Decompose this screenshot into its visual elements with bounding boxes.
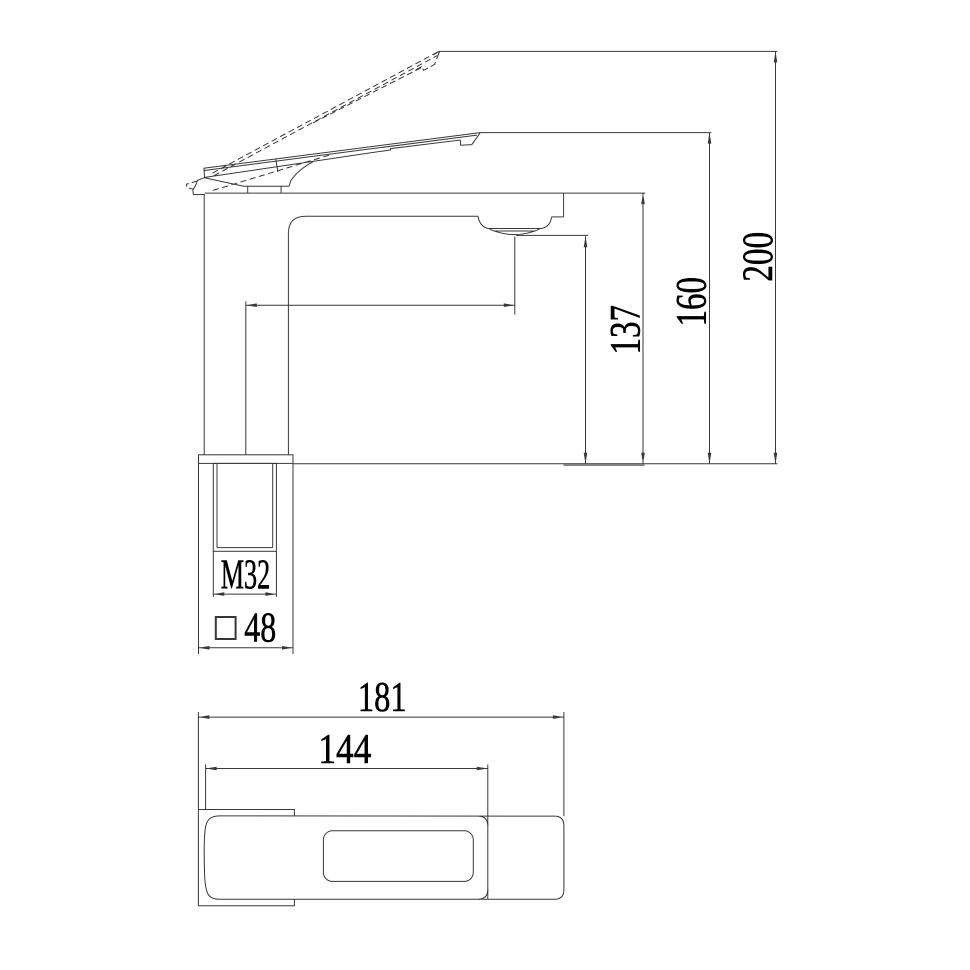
- svg-text:160: 160: [669, 277, 716, 327]
- svg-text:M32: M32: [221, 553, 271, 599]
- svg-text:48: 48: [244, 606, 276, 652]
- svg-text:181: 181: [358, 675, 407, 721]
- svg-text:200: 200: [735, 232, 782, 282]
- svg-text:144: 144: [318, 727, 371, 773]
- svg-text:137: 137: [603, 305, 650, 355]
